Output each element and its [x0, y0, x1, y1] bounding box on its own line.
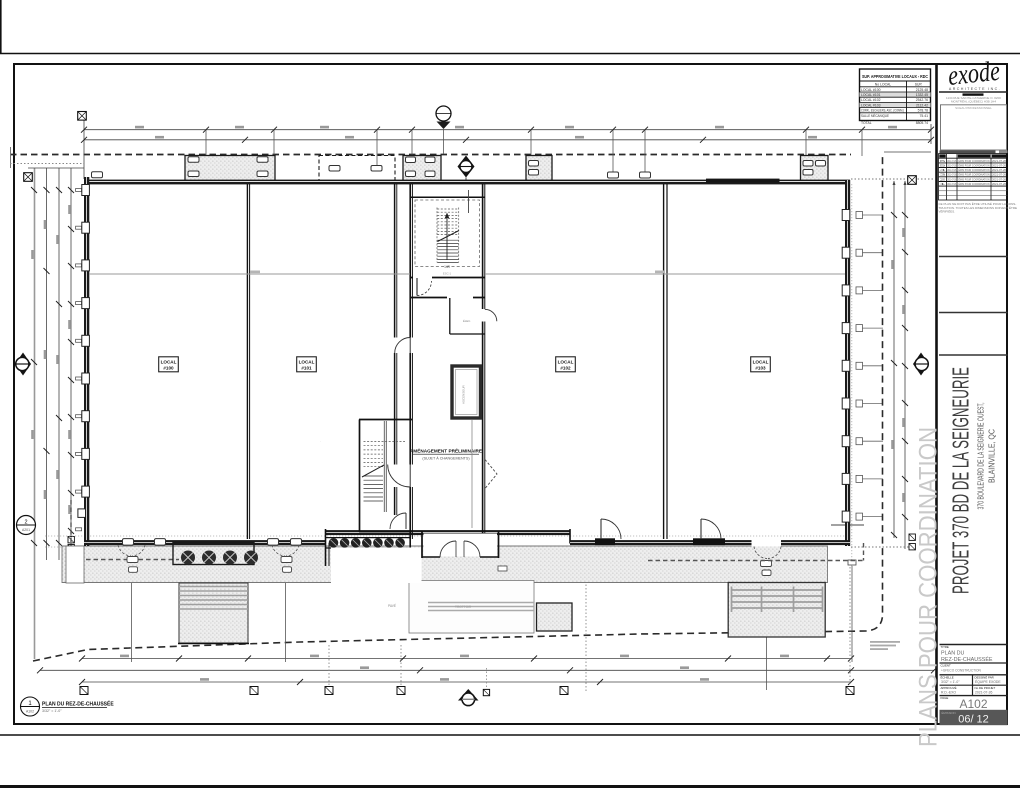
svg-text:ÉCHELLE: ÉCHELLE [941, 674, 954, 679]
svg-text:SUP. APPROXIMATIVE LOCAUX - RD: SUP. APPROXIMATIVE LOCAUX - RDC [862, 74, 928, 80]
svg-text:ÉMIS POUR COORDINATION: ÉMIS POUR COORDINATION [959, 172, 990, 177]
svg-text:2021-07-26: 2021-07-26 [947, 159, 956, 163]
svg-text:VÉRIFIÉES.: VÉRIFIÉES. [939, 209, 956, 214]
svg-text:ÉMIS POUR COORDINATION: ÉMIS POUR COORDINATION [959, 158, 990, 163]
svg-text:A102: A102 [26, 710, 34, 714]
svg-text:LOCAL #100: LOCAL #100 [861, 88, 881, 92]
svg-text:2125.48: 2125.48 [916, 88, 928, 92]
svg-text:ÉMIS POUR COORDINATION: ÉMIS POUR COORDINATION [959, 181, 990, 186]
svg-text:ESC-1: ESC-1 [443, 272, 452, 276]
svg-text:LOCAL #102: LOCAL #102 [861, 98, 881, 102]
svg-text:PAGE: PAGE [941, 696, 949, 700]
svg-text:14R: 14R [444, 265, 451, 269]
svg-text:+GFECO CONSTRUCTION: +GFECO CONSTRUCTION [941, 668, 981, 672]
svg-text:ÉQUIPE EXODE: ÉQUIPE EXODE [975, 679, 1001, 684]
svg-text:LOCAL: LOCAL [161, 359, 177, 364]
svg-text:2021-07-26: 2021-07-26 [947, 182, 956, 186]
svg-text:3/32" = 1'-0": 3/32" = 1'-0" [941, 680, 960, 684]
svg-text:2112.42: 2112.42 [916, 103, 928, 107]
svg-text:CORR., ESCALIERS, ASC. (COMM.): CORR., ESCALIERS, ASC. (COMM.) [861, 109, 904, 113]
svg-text:DESSINÉ PAR: DESSINÉ PAR [975, 674, 994, 679]
svg-text:TOTAL: TOTAL [861, 121, 872, 125]
svg-text:LOCAL: LOCAL [558, 359, 574, 364]
svg-text:LOCAL #101: LOCAL #101 [861, 93, 881, 97]
svg-text:REZ-DE-CHAUSSÉE: REZ-DE-CHAUSSÉE [941, 656, 993, 663]
svg-text:SCEAU PROFESSIONNEL: SCEAU PROFESSIONNEL [955, 106, 992, 110]
svg-text:2021-07-26: 2021-07-26 [992, 182, 1006, 186]
svg-text:ÉMIS POUR COORDINATION: ÉMIS POUR COORDINATION [959, 162, 990, 167]
svg-text:1332.45: 1332.45 [916, 93, 928, 97]
svg-text:R.D.-EXO: R.D.-EXO [941, 691, 956, 695]
svg-text:#100: #100 [163, 366, 174, 371]
svg-text:No LOCAL: No LOCAL [875, 82, 892, 86]
svg-text:A102: A102 [959, 697, 987, 711]
svg-text:TITRE: TITRE [941, 645, 949, 649]
svg-text:#102: #102 [560, 366, 571, 371]
svg-text:2021-07-26: 2021-07-26 [992, 173, 1006, 177]
svg-text:2021-07-26: 2021-07-26 [992, 159, 1006, 163]
svg-text:PLAN DU: PLAN DU [941, 651, 964, 657]
svg-text:APPROUVÉ: APPROUVÉ [941, 685, 957, 690]
svg-text:SALLE MÉCANIQUE: SALLE MÉCANIQUE [861, 113, 890, 118]
svg-text:MONTRÉAL (QUÉBEC) H3B 1H4: MONTRÉAL (QUÉBEC) H3B 1H4 [951, 99, 996, 104]
svg-text:ASCENSEUR: ASCENSEUR [462, 384, 466, 404]
svg-text:PLAN DU REZ-DE-CHAUSSÉE: PLAN DU REZ-DE-CHAUSSÉE [42, 700, 114, 708]
svg-text:3/32" = 1'-0": 3/32" = 1'-0" [42, 709, 62, 713]
svg-text:TROTTOIR: TROTTOIR [455, 605, 472, 609]
svg-text:PLANS POUR COORDINATION: PLANS POUR COORDINATION [915, 427, 943, 747]
svg-text:75.41: 75.41 [920, 114, 929, 118]
svg-text:LOCAL #103: LOCAL #103 [861, 103, 881, 107]
svg-text:PAVÉ: PAVÉ [388, 603, 396, 608]
svg-text:AMÉNAGEMENT PRÉLIMINAIRE: AMÉNAGEMENT PRÉLIMINAIRE [410, 447, 482, 454]
svg-text:A201: A201 [22, 528, 30, 532]
svg-text:ÉMIS POUR COORDINATION: ÉMIS POUR COORDINATION [959, 167, 990, 172]
svg-text:2021-07-26: 2021-07-26 [947, 177, 956, 181]
svg-text:#101: #101 [301, 366, 312, 371]
svg-text:ÉLEC.: ÉLEC. [463, 318, 471, 323]
svg-text:578.78: 578.78 [918, 109, 928, 113]
svg-text:8805.74: 8805.74 [916, 121, 928, 125]
svg-text:(SUJET À CHANGEMENTS): (SUJET À CHANGEMENTS) [422, 456, 469, 460]
svg-text:LOCAL: LOCAL [753, 359, 769, 364]
svg-text:2021-07-26: 2021-07-26 [992, 163, 1006, 167]
svg-text:2021-07-26: 2021-07-26 [947, 173, 956, 177]
svg-text:PROJET 370 BD DE LA SEIGNEURIE: PROJET 370 BD DE LA SEIGNEURIE [948, 367, 974, 594]
svg-text:BLAINVILLE, QC: BLAINVILLE, QC [987, 429, 997, 483]
svg-text:2021-07-26: 2021-07-26 [947, 163, 956, 167]
svg-text:ARCHITECTE INC.: ARCHITECTE INC. [949, 87, 1001, 91]
svg-text:370 BOULEVARD DE LA SEIGNERIE: 370 BOULEVARD DE LA SEIGNERIE OUEST, [976, 403, 986, 510]
svg-text:2: 2 [24, 519, 27, 525]
svg-text:LOCAL: LOCAL [299, 359, 315, 364]
svg-text:ÉMISSION: ÉMISSION [942, 710, 956, 715]
svg-text:CLIENT: CLIENT [941, 664, 952, 668]
svg-text:2542.76: 2542.76 [916, 98, 928, 102]
svg-text:SUP.: SUP. [915, 82, 923, 86]
svg-text:2021-07-26: 2021-07-26 [992, 168, 1006, 172]
svg-text:2021-07-26: 2021-07-26 [975, 691, 992, 695]
svg-text:06/ 12: 06/ 12 [958, 714, 989, 726]
svg-text:2021-07-26: 2021-07-26 [992, 177, 1006, 181]
svg-text:#103: #103 [755, 366, 766, 371]
svg-text:2021-07-26: 2021-07-26 [947, 168, 956, 172]
svg-text:No DE PROJET: No DE PROJET [975, 686, 996, 690]
svg-text:ÉMIS POUR COORDINATION: ÉMIS POUR COORDINATION [959, 176, 990, 181]
